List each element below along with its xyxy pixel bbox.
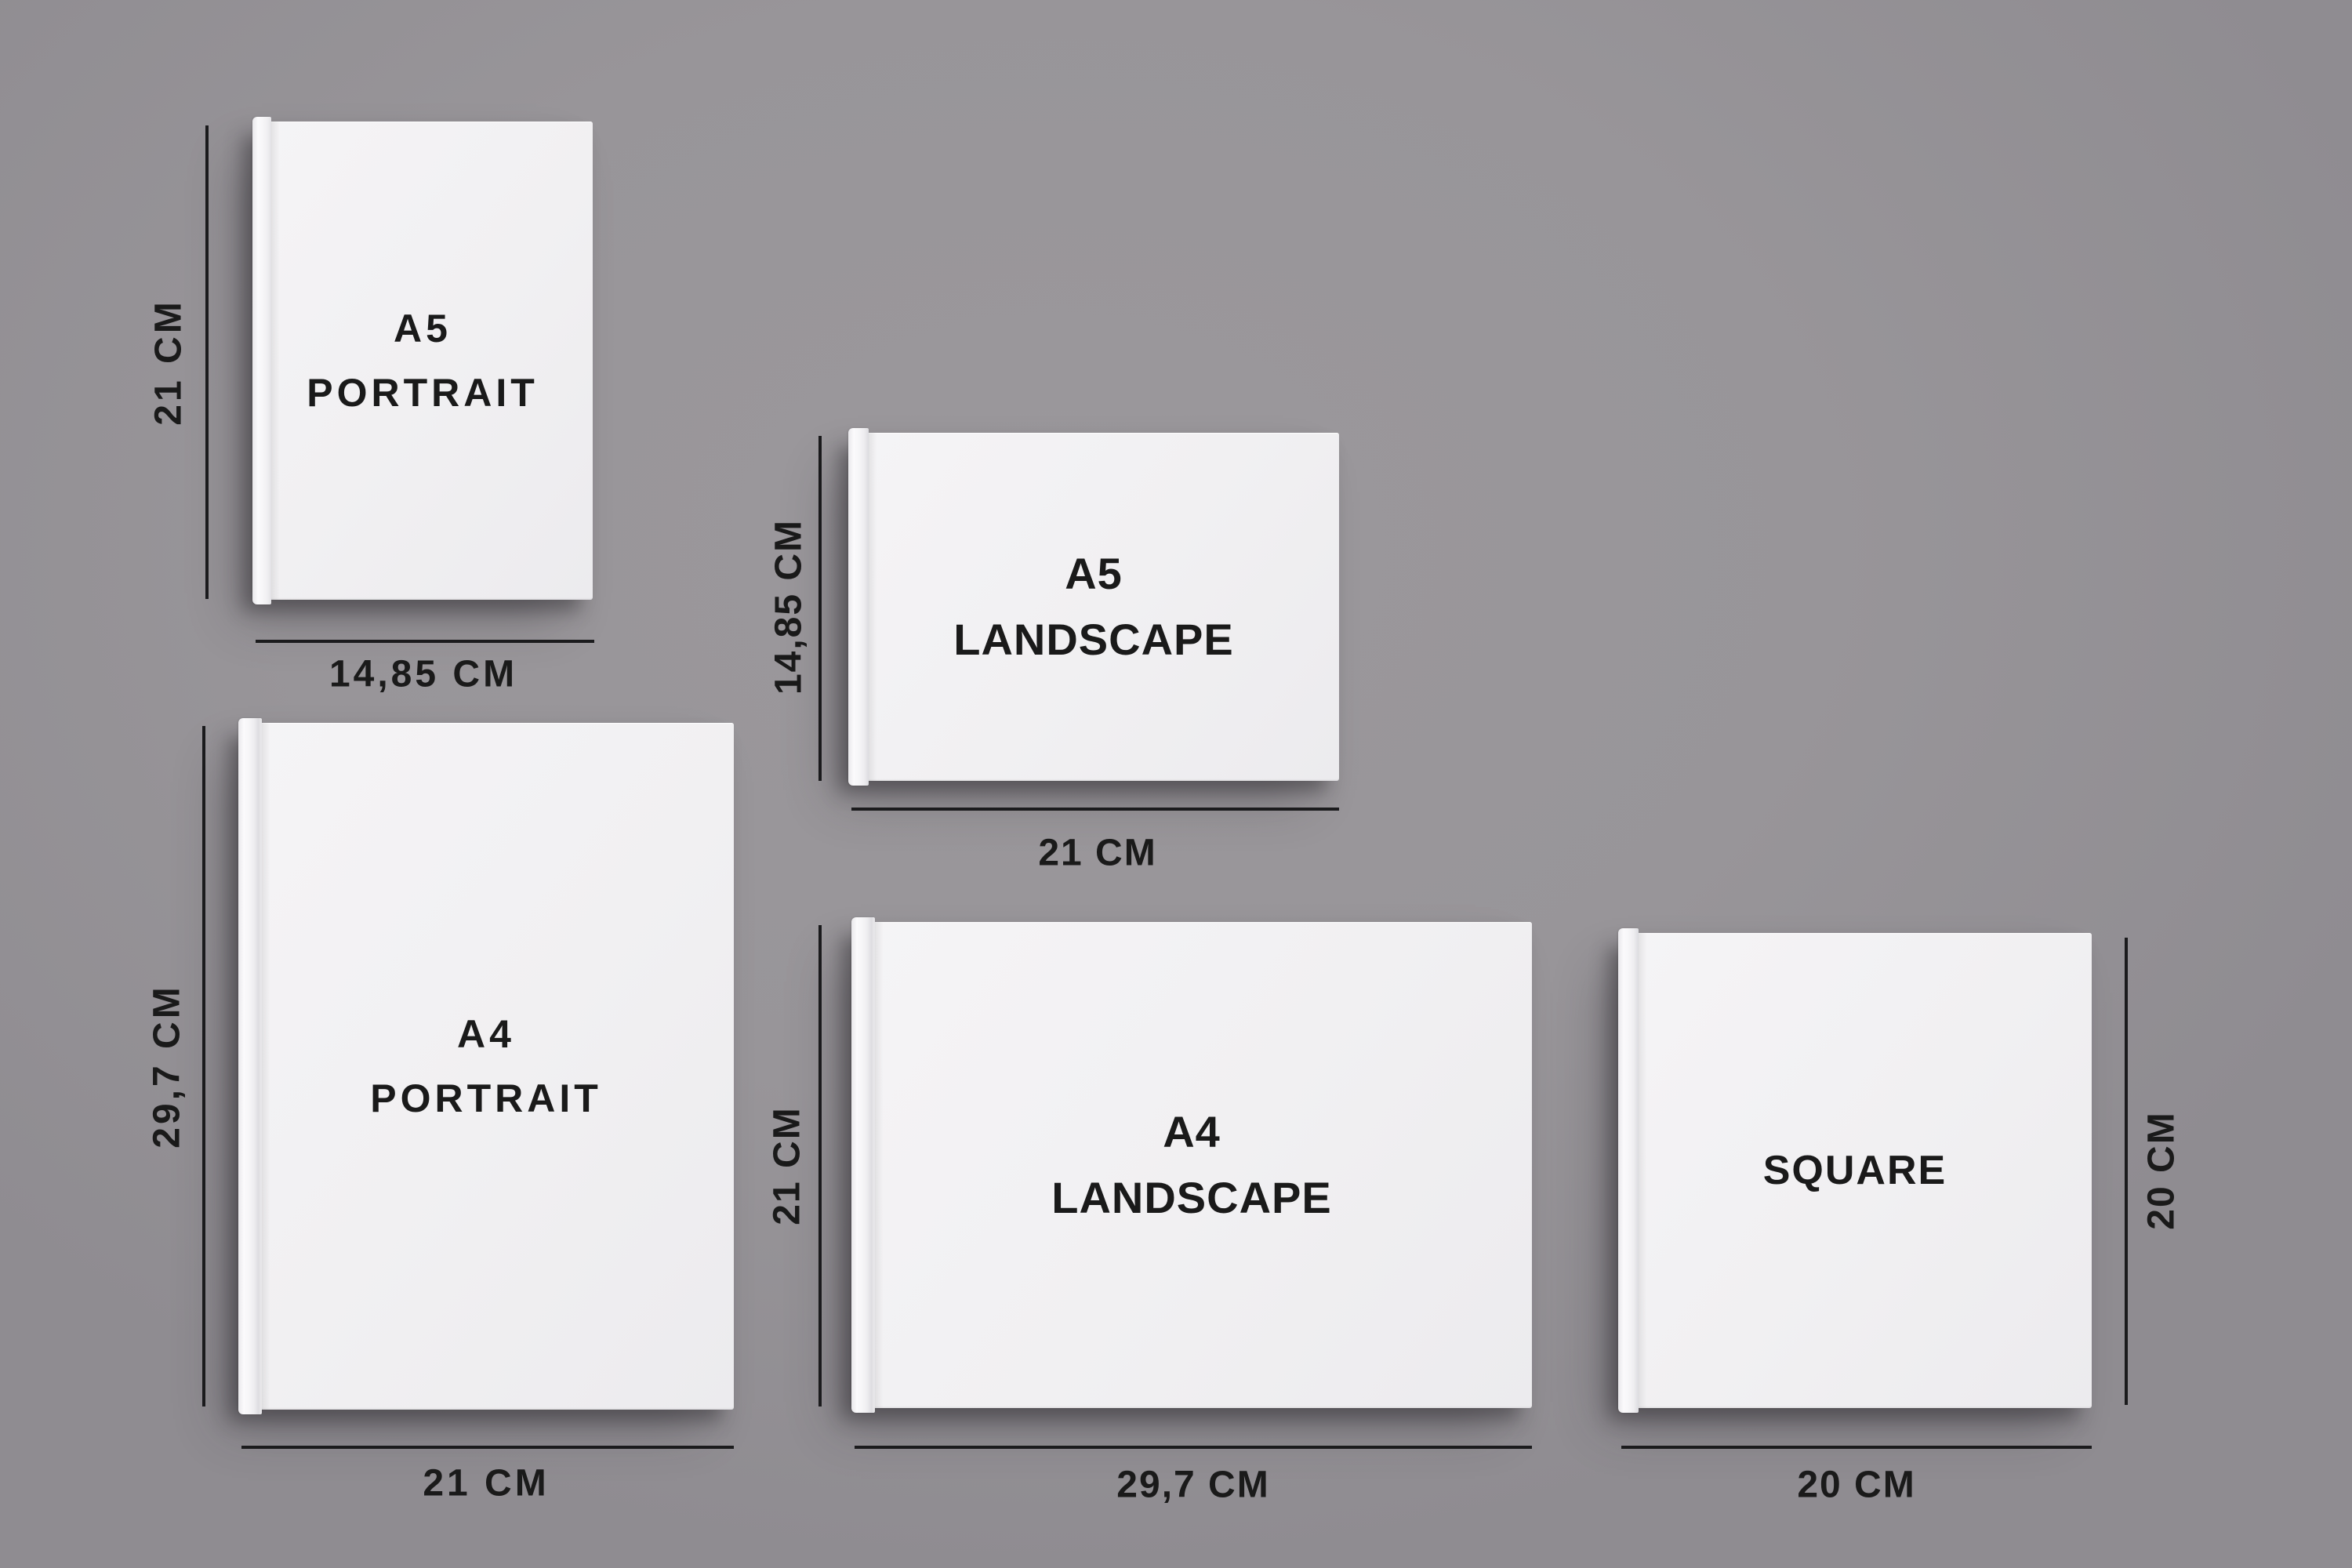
book-title: A4 LANDSCAPE <box>1051 1099 1331 1231</box>
book-title-line2: PORTRAIT <box>370 1066 602 1131</box>
width-dimension-line <box>851 808 1339 811</box>
book-spine <box>238 718 262 1414</box>
book-hinge-crease <box>875 922 886 1408</box>
book-title: A5 PORTRAIT <box>307 296 539 425</box>
book-title-line1: A4 <box>370 1002 602 1066</box>
book-a5-landscape-cover: A5 LANDSCAPE <box>848 433 1339 781</box>
width-dimension-label: 20 CM <box>1797 1464 1915 1507</box>
book-title-line2: LANDSCAPE <box>953 607 1233 673</box>
width-dimension-label: 14,85 CM <box>329 653 517 696</box>
height-dimension-line <box>202 726 205 1406</box>
book-spine <box>848 428 869 786</box>
height-dimension-line <box>818 925 822 1406</box>
height-dimension-label: 21 CM <box>147 299 191 425</box>
book-title-line1: A4 <box>1051 1099 1331 1165</box>
book-title-line2: PORTRAIT <box>307 361 539 425</box>
book-title: A4 PORTRAIT <box>370 1002 602 1131</box>
book-spine <box>1618 928 1639 1413</box>
book-hinge-crease <box>271 122 282 600</box>
book-square-cover: SQUARE <box>1618 933 2092 1408</box>
book-a4-landscape-cover: A4 LANDSCAPE <box>851 922 1532 1408</box>
book-title-line2: LANDSCAPE <box>1051 1165 1331 1231</box>
book-a5-portrait-cover: A5 PORTRAIT <box>252 122 593 600</box>
width-dimension-label: 21 CM <box>423 1462 549 1505</box>
book-hinge-crease <box>1639 933 1650 1408</box>
height-dimension-label: 21 CM <box>766 1106 809 1225</box>
book-hinge-crease <box>869 433 880 781</box>
width-dimension-line <box>1621 1446 2092 1449</box>
width-dimension-label: 21 CM <box>1038 832 1156 875</box>
book-spine <box>252 117 271 604</box>
height-dimension-label: 14,85 CM <box>768 519 811 695</box>
height-dimension-label: 20 CM <box>2140 1111 2183 1229</box>
book-title: A5 LANDSCAPE <box>953 541 1233 673</box>
height-dimension-line <box>2125 938 2128 1405</box>
height-dimension-line <box>205 125 209 599</box>
book-title-line1: A5 <box>953 541 1233 607</box>
width-dimension-line <box>241 1446 734 1449</box>
book-size-comparison-canvas: 21 CM A5 PORTRAIT 14,85 CM 14,85 CM A5 L… <box>0 0 2352 1568</box>
book-title: SQUARE <box>1763 1139 1947 1202</box>
height-dimension-line <box>818 436 822 781</box>
book-hinge-crease <box>262 723 273 1410</box>
height-dimension-label: 29,7 CM <box>146 984 189 1148</box>
width-dimension-line <box>855 1446 1532 1449</box>
book-title-line1: A5 <box>307 296 539 361</box>
width-dimension-label: 29,7 CM <box>1116 1464 1269 1507</box>
book-title-line1: SQUARE <box>1763 1139 1947 1202</box>
book-spine <box>851 917 875 1413</box>
width-dimension-line <box>256 640 594 643</box>
book-a4-portrait-cover: A4 PORTRAIT <box>238 723 734 1410</box>
